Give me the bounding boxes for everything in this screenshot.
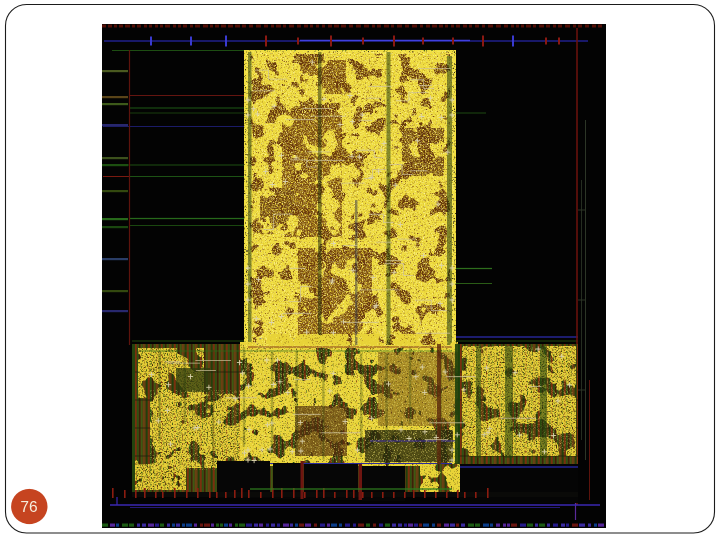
svg-text:76: 76 <box>20 499 37 516</box>
